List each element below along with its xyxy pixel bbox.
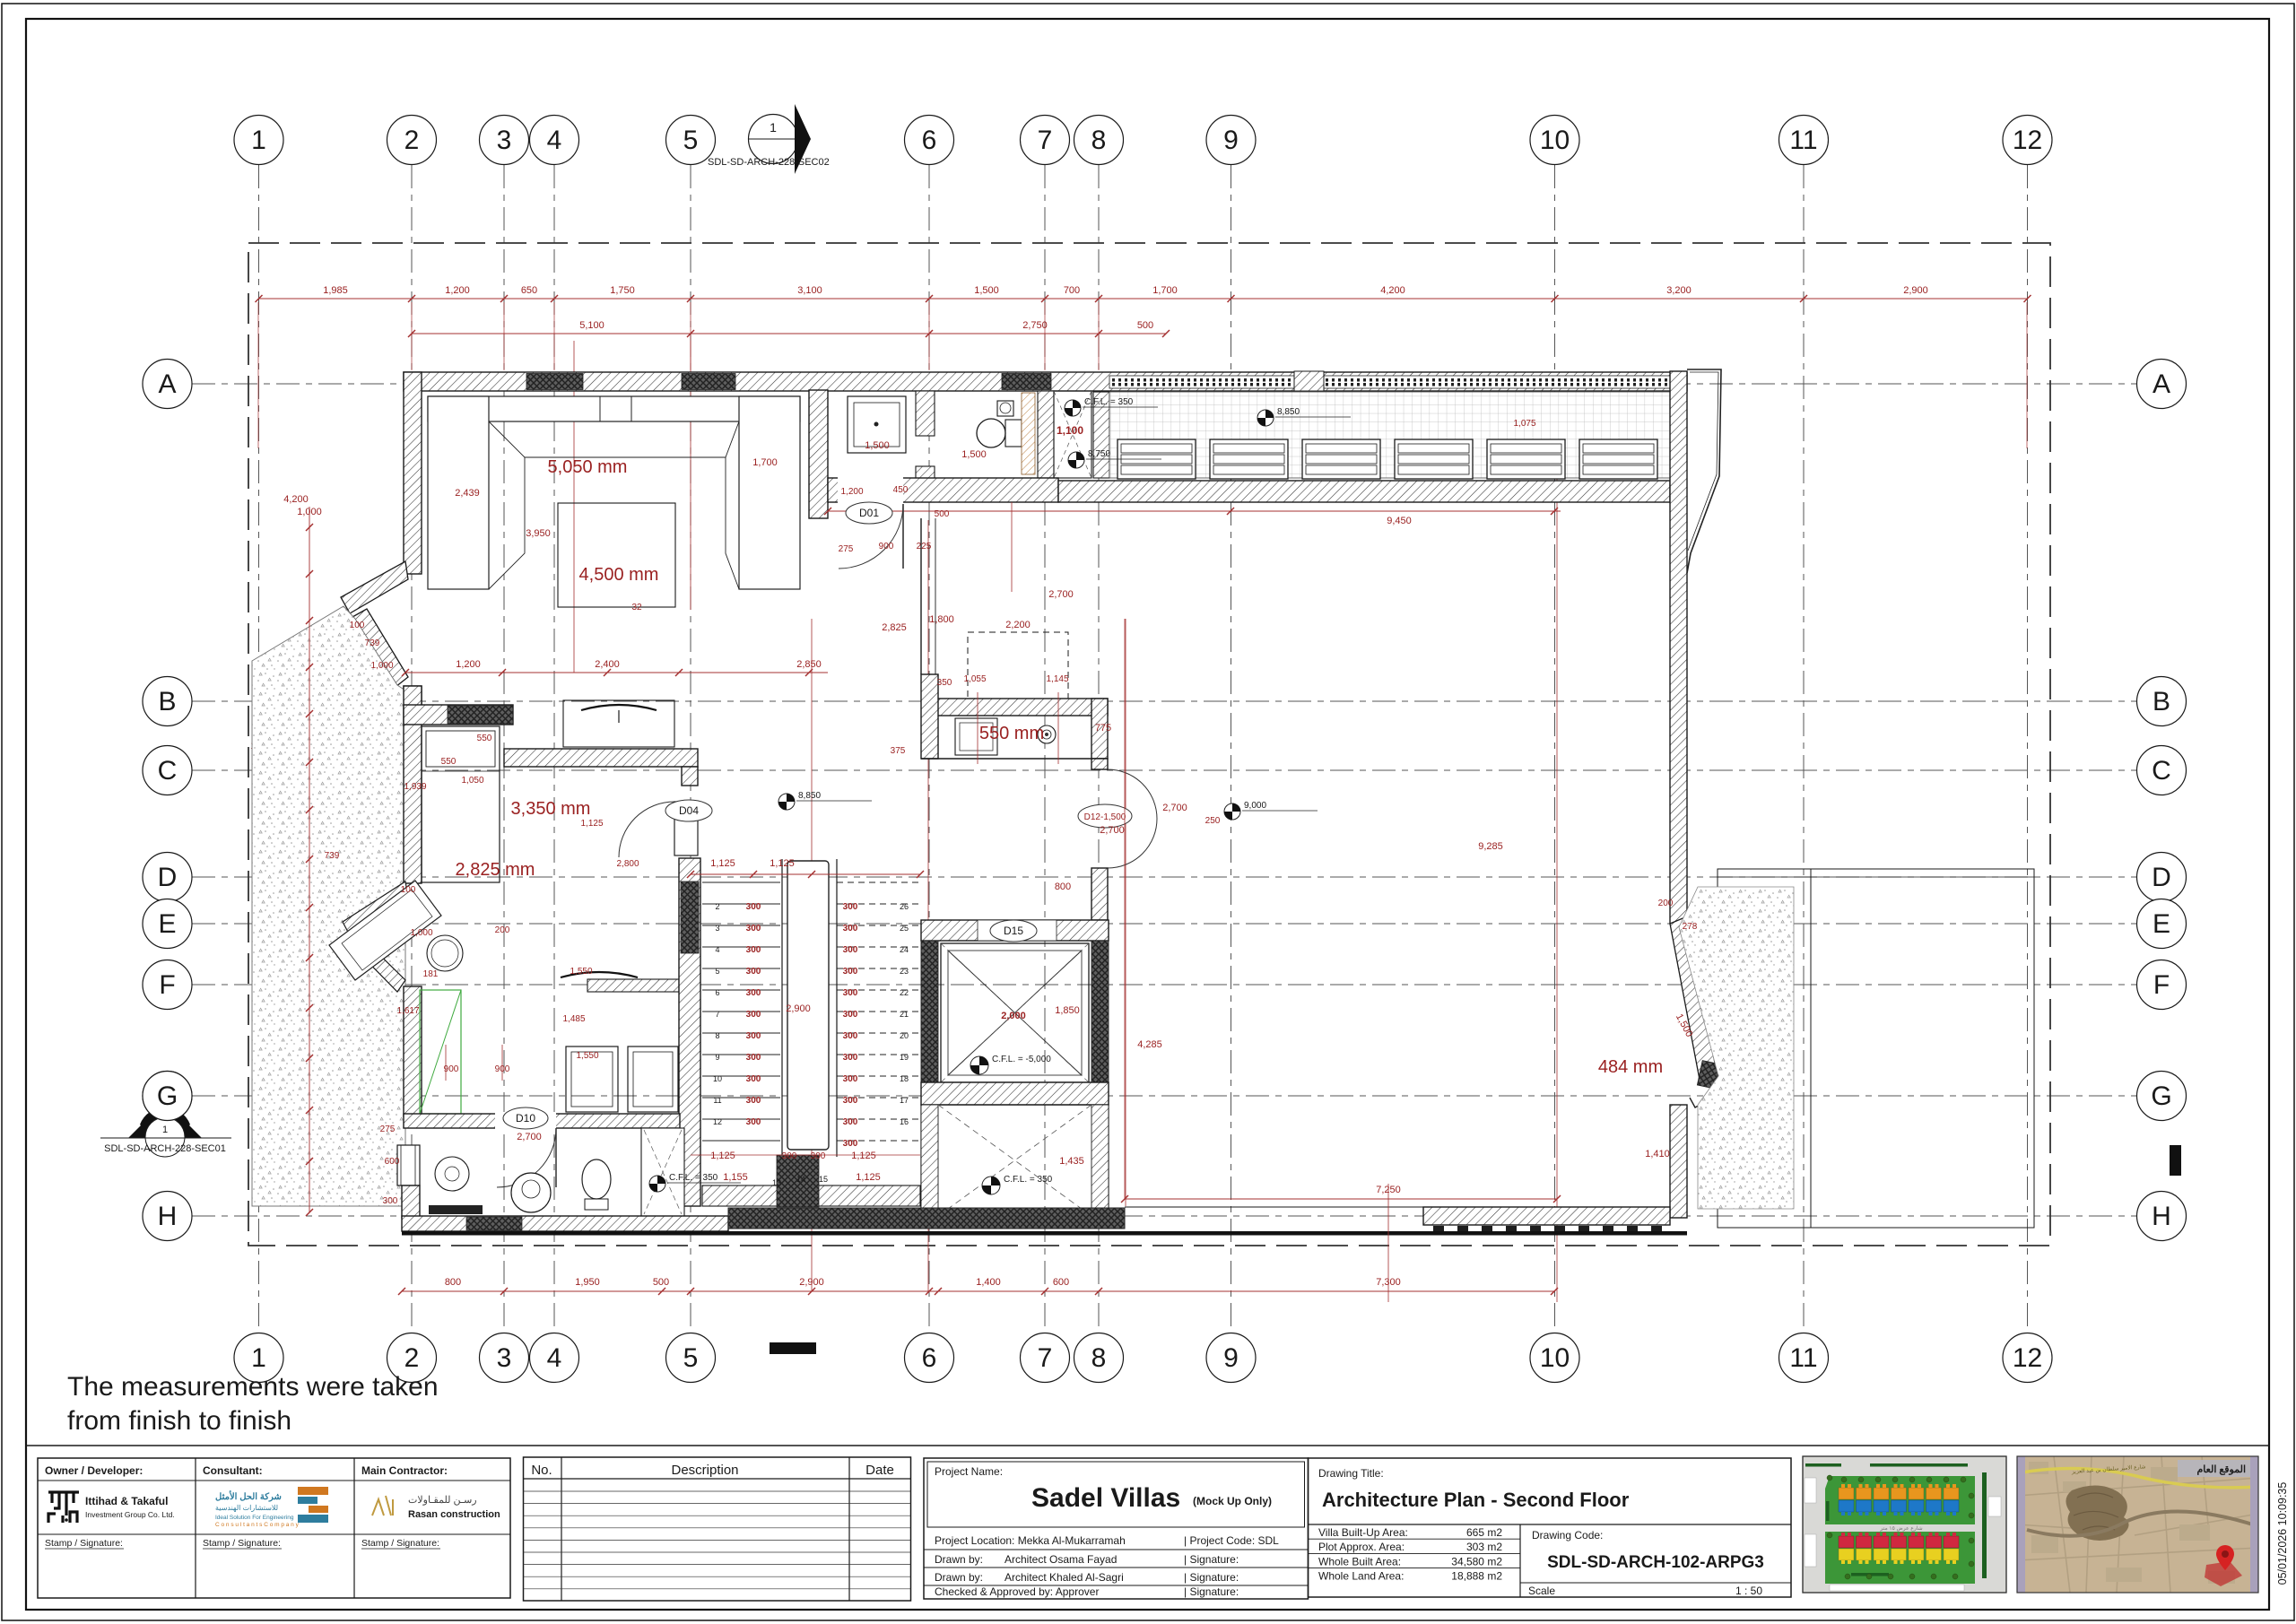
svg-text:4: 4: [547, 126, 562, 155]
svg-text:18,888 m2: 18,888 m2: [1451, 1570, 1502, 1583]
svg-text:2,439: 2,439: [455, 488, 480, 499]
svg-text:17: 17: [900, 1096, 909, 1105]
svg-text:Rasan construction: Rasan construction: [408, 1509, 500, 1520]
svg-text:6: 6: [715, 988, 719, 997]
svg-text:300: 300: [843, 967, 858, 977]
svg-text:300: 300: [843, 902, 858, 912]
svg-text:D01: D01: [859, 507, 879, 519]
svg-text:2,700: 2,700: [1162, 803, 1187, 813]
svg-text:D12-1,500: D12-1,500: [1084, 812, 1126, 822]
svg-text:شارع عرض ١٥ متر: شارع عرض ١٥ متر: [1879, 1525, 1922, 1532]
svg-text:Consultant:: Consultant:: [203, 1464, 263, 1477]
svg-text:11: 11: [1789, 126, 1817, 155]
svg-text:1,145: 1,145: [1046, 674, 1068, 684]
svg-text:5: 5: [715, 967, 719, 976]
svg-text:550: 550: [441, 757, 457, 767]
svg-text:5: 5: [683, 126, 699, 155]
svg-text:1,939: 1,939: [404, 782, 426, 792]
svg-text:C.F.L. = 350: C.F.L. = 350: [1004, 1175, 1053, 1185]
svg-text:2,700: 2,700: [517, 1132, 542, 1142]
svg-text:5,050 mm: 5,050 mm: [548, 457, 628, 477]
svg-text:34,580 m2: 34,580 m2: [1451, 1555, 1502, 1568]
svg-text:450: 450: [893, 485, 909, 495]
svg-text:| Signature:: | Signature:: [1184, 1585, 1239, 1598]
svg-text:9,450: 9,450: [1387, 516, 1412, 526]
svg-text:775: 775: [1095, 723, 1111, 734]
svg-text:E: E: [2152, 909, 2170, 939]
svg-text:600: 600: [385, 1157, 400, 1167]
svg-text:Sadel Villas: Sadel Villas: [1031, 1483, 1180, 1513]
svg-text:1: 1: [251, 1343, 266, 1373]
svg-text:B: B: [2152, 687, 2170, 716]
svg-text:H: H: [158, 1202, 178, 1231]
svg-text:1,155: 1,155: [723, 1172, 748, 1183]
svg-text:1,500: 1,500: [974, 285, 999, 296]
svg-text:Stamp / Signature:: Stamp / Signature:: [45, 1538, 123, 1549]
svg-text:18: 18: [900, 1074, 909, 1083]
svg-text:Drawn by:: Drawn by:: [935, 1553, 983, 1566]
svg-text:7: 7: [1038, 126, 1053, 155]
svg-text:1 : 50: 1 : 50: [1735, 1585, 1762, 1597]
svg-text:1,800: 1,800: [929, 614, 954, 625]
svg-text:550: 550: [477, 734, 492, 743]
svg-text:700: 700: [1064, 285, 1080, 296]
svg-text:275: 275: [380, 1125, 396, 1134]
svg-text:C o n s u l t a n t s C o m p: C o n s u l t a n t s C o m p a n y: [215, 1522, 300, 1528]
svg-text:8,850: 8,850: [1277, 407, 1300, 417]
svg-text:25: 25: [900, 924, 909, 933]
svg-text:Project Location: Mekka Al-Mu: Project Location: Mekka Al-Mukarramah: [935, 1534, 1126, 1547]
svg-text:3: 3: [497, 1343, 512, 1373]
svg-text:Architect Khaled Al-Sagri: Architect Khaled Al-Sagri: [1004, 1571, 1124, 1584]
svg-text:Owner / Developer:: Owner / Developer:: [45, 1464, 143, 1477]
svg-text:(Mock Up Only): (Mock Up Only): [1193, 1495, 1272, 1507]
svg-text:23: 23: [900, 967, 909, 976]
svg-text:1,550: 1,550: [576, 1051, 598, 1061]
svg-text:8: 8: [1091, 126, 1107, 155]
svg-text:739: 739: [365, 638, 380, 648]
svg-text:2,700: 2,700: [1100, 825, 1125, 836]
svg-text:800: 800: [1055, 881, 1071, 892]
svg-text:250: 250: [1205, 816, 1221, 826]
svg-text:19: 19: [900, 1053, 909, 1062]
svg-text:15: 15: [819, 1175, 828, 1184]
svg-text:300: 300: [843, 988, 858, 998]
svg-text:600: 600: [1053, 1277, 1069, 1288]
svg-text:3,200: 3,200: [1666, 285, 1692, 296]
svg-text:Architecture Plan - Second Flo: Architecture Plan - Second Floor: [1322, 1489, 1630, 1511]
svg-text:05/01/2026 10:09:35: 05/01/2026 10:09:35: [2276, 1482, 2289, 1585]
svg-text:300: 300: [746, 988, 761, 998]
svg-text:9: 9: [1223, 1343, 1239, 1373]
svg-text:2,700: 2,700: [1048, 589, 1074, 600]
svg-text:225: 225: [917, 542, 932, 551]
svg-text:9,285: 9,285: [1478, 841, 1503, 852]
svg-text:Stamp / Signature:: Stamp / Signature:: [361, 1538, 439, 1549]
svg-text:Whole Land Area:: Whole Land Area:: [1318, 1570, 1404, 1583]
svg-text:11: 11: [1789, 1343, 1817, 1373]
svg-text:1,125: 1,125: [851, 1151, 876, 1161]
svg-text:500: 500: [935, 509, 950, 519]
svg-text:D04: D04: [679, 804, 699, 817]
svg-text:22: 22: [900, 988, 909, 997]
svg-text:1,550: 1,550: [570, 967, 592, 977]
svg-text:2,900: 2,900: [1903, 285, 1928, 296]
svg-text:| Project Code: SDL: | Project Code: SDL: [1184, 1534, 1279, 1547]
svg-text:484 mm: 484 mm: [1598, 1057, 1663, 1077]
svg-text:D15: D15: [1004, 925, 1023, 937]
svg-text:2: 2: [404, 126, 420, 155]
svg-text:8,850: 8,850: [798, 791, 821, 801]
svg-text:C.F.L. = 350: C.F.L. = 350: [669, 1173, 718, 1183]
svg-text:2,825: 2,825: [882, 622, 907, 633]
svg-text:1: 1: [251, 126, 266, 155]
svg-text:200: 200: [1658, 899, 1674, 908]
svg-text:7: 7: [715, 1010, 719, 1019]
svg-text:20: 20: [900, 1031, 909, 1040]
svg-text:Scale: Scale: [1528, 1585, 1555, 1597]
svg-text:2,900: 2,900: [786, 1003, 811, 1014]
svg-text:100: 100: [401, 885, 416, 895]
svg-text:300: 300: [383, 1196, 398, 1206]
svg-text:Project Name:: Project Name:: [935, 1465, 1003, 1478]
svg-text:1,125: 1,125: [710, 1151, 735, 1161]
svg-text:300: 300: [843, 924, 858, 934]
svg-text:4,200: 4,200: [1380, 285, 1405, 296]
svg-text:C: C: [2152, 756, 2171, 786]
svg-text:3,350 mm: 3,350 mm: [511, 799, 591, 819]
svg-text:32: 32: [631, 603, 642, 612]
svg-text:7: 7: [1038, 1343, 1053, 1373]
svg-text:300: 300: [746, 967, 761, 977]
svg-text:1,485: 1,485: [562, 1014, 585, 1024]
svg-text:300: 300: [746, 1117, 761, 1127]
svg-text:SDL-SD-ARCH-102-ARPG3: SDL-SD-ARCH-102-ARPG3: [1547, 1553, 1764, 1572]
svg-text:H: H: [2152, 1202, 2171, 1231]
svg-text:300: 300: [843, 1139, 858, 1149]
svg-text:F: F: [2153, 970, 2170, 1000]
svg-text:278: 278: [1683, 922, 1698, 932]
svg-text:Ideal Solution For Engineering: Ideal Solution For Engineering: [215, 1515, 294, 1521]
svg-text:375: 375: [891, 746, 906, 756]
svg-text:Drawing Title:: Drawing Title:: [1318, 1467, 1384, 1480]
svg-text:SDL-SD-ARCH-228-SEC02: SDL-SD-ARCH-228-SEC02: [708, 157, 830, 168]
svg-text:4,200: 4,200: [283, 494, 309, 505]
svg-text:12: 12: [2013, 126, 2042, 155]
svg-text:1,750: 1,750: [610, 285, 635, 296]
svg-text:800: 800: [445, 1277, 461, 1288]
svg-text:شركة الحل الأمثل: شركة الحل الأمثل: [215, 1491, 282, 1502]
svg-text:C.F.L. = -5,000: C.F.L. = -5,000: [992, 1055, 1051, 1064]
svg-text:300: 300: [811, 1151, 826, 1161]
svg-text:F: F: [159, 970, 175, 1000]
svg-text:C: C: [158, 756, 178, 786]
svg-text:303 m2: 303 m2: [1466, 1541, 1502, 1553]
svg-text:1,410: 1,410: [1645, 1149, 1670, 1159]
svg-text:الموقع العام: الموقع العام: [2197, 1464, 2247, 1475]
svg-text:2,850: 2,850: [796, 659, 822, 670]
svg-text:1,055: 1,055: [963, 674, 986, 684]
svg-text:A: A: [2152, 369, 2170, 399]
svg-text:A: A: [158, 369, 176, 399]
svg-text:550 mm: 550 mm: [979, 724, 1044, 743]
svg-text:Date: Date: [865, 1463, 894, 1478]
svg-text:24: 24: [900, 945, 909, 954]
svg-text:275: 275: [839, 544, 854, 554]
svg-text:500: 500: [653, 1277, 669, 1288]
svg-text:300: 300: [843, 1117, 858, 1127]
svg-text:300: 300: [843, 1074, 858, 1084]
svg-text:1,075: 1,075: [1513, 419, 1535, 429]
svg-text:1,125: 1,125: [580, 819, 603, 829]
svg-text:200: 200: [495, 925, 510, 935]
svg-text:8,750: 8,750: [1088, 449, 1110, 459]
svg-text:1: 1: [770, 120, 777, 135]
svg-text:1,617: 1,617: [396, 1006, 419, 1016]
svg-text:9,000: 9,000: [1244, 801, 1266, 811]
svg-text:Whole Built Area:: Whole Built Area:: [1318, 1555, 1401, 1568]
svg-text:9: 9: [715, 1053, 719, 1062]
svg-text:1,200: 1,200: [840, 487, 863, 497]
svg-text:Checked & Approved by: Appro: Checked & Approved by: Approver: [935, 1585, 1099, 1598]
svg-text:3: 3: [715, 924, 719, 933]
svg-text:350: 350: [937, 678, 952, 688]
svg-text:للاستشارات الهندسية: للاستشارات الهندسية: [215, 1504, 278, 1512]
svg-text:Plot Approx. Area:: Plot Approx. Area:: [1318, 1541, 1405, 1553]
svg-text:300: 300: [843, 945, 858, 955]
svg-text:300: 300: [746, 902, 761, 912]
svg-text:300: 300: [746, 1010, 761, 1020]
svg-text:1,700: 1,700: [752, 457, 778, 468]
svg-text:10: 10: [1540, 126, 1570, 155]
svg-text:1,200: 1,200: [456, 659, 481, 670]
svg-text:739: 739: [325, 851, 340, 861]
svg-text:Description: Description: [671, 1463, 738, 1478]
svg-text:G: G: [2151, 1081, 2171, 1111]
svg-text:2,800: 2,800: [616, 859, 639, 869]
svg-text:8: 8: [1091, 1343, 1107, 1373]
svg-text:10: 10: [1540, 1343, 1570, 1373]
svg-text:2,400: 2,400: [595, 659, 620, 670]
svg-text:D: D: [2152, 863, 2171, 892]
svg-text:1,125: 1,125: [770, 858, 795, 869]
svg-text:300: 300: [746, 1053, 761, 1063]
svg-text:1,000: 1,000: [370, 661, 393, 671]
svg-text:G: G: [157, 1081, 178, 1111]
svg-text:300: 300: [746, 945, 761, 955]
svg-text:Investment Group Co. Ltd.: Investment Group Co. Ltd.: [85, 1510, 175, 1519]
svg-text:500: 500: [1137, 320, 1153, 331]
svg-text:| Signature:: | Signature:: [1184, 1571, 1239, 1584]
svg-text:Stamp / Signature:: Stamp / Signature:: [203, 1538, 281, 1549]
svg-text:| Signature:: | Signature:: [1184, 1553, 1239, 1566]
svg-text:Architect Osama Fayad: Architect Osama Fayad: [1004, 1553, 1117, 1566]
svg-text:11: 11: [713, 1096, 721, 1105]
svg-text:1,985: 1,985: [323, 285, 348, 296]
svg-text:300: 300: [746, 1096, 761, 1106]
svg-text:1,435: 1,435: [1059, 1156, 1084, 1167]
svg-text:3,950: 3,950: [526, 528, 551, 539]
svg-text:3: 3: [497, 126, 512, 155]
svg-text:B: B: [158, 687, 176, 716]
svg-text:Villa Built-Up Area:: Villa Built-Up Area:: [1318, 1526, 1408, 1539]
svg-text:100: 100: [350, 621, 365, 630]
svg-text:300: 300: [843, 1096, 858, 1106]
svg-text:5: 5: [683, 1343, 699, 1373]
svg-text:5,100: 5,100: [579, 320, 604, 331]
svg-text:181: 181: [423, 969, 439, 979]
svg-text:1,000: 1,000: [410, 928, 432, 938]
svg-text:3,100: 3,100: [797, 285, 822, 296]
svg-text:300: 300: [843, 1053, 858, 1063]
svg-text:رسـن للمقـاولات: رسـن للمقـاولات: [408, 1495, 477, 1506]
svg-text:Ittihad & Takaful: Ittihad & Takaful: [85, 1495, 168, 1507]
svg-text:16: 16: [900, 1117, 909, 1126]
svg-text:1,500: 1,500: [961, 449, 987, 460]
svg-text:C.F.L. = 350: C.F.L. = 350: [1084, 397, 1134, 407]
svg-text:300: 300: [843, 1031, 858, 1041]
svg-text:2,825 mm: 2,825 mm: [456, 860, 535, 880]
svg-text:No.: No.: [531, 1463, 552, 1478]
svg-text:2,200: 2,200: [1005, 620, 1031, 630]
svg-text:650: 650: [521, 285, 537, 296]
svg-text:4: 4: [715, 945, 719, 954]
svg-text:12: 12: [713, 1117, 722, 1126]
svg-text:900: 900: [879, 542, 894, 551]
svg-text:21: 21: [900, 1010, 909, 1019]
svg-text:4,500 mm: 4,500 mm: [579, 565, 659, 585]
svg-text:from finish to finish: from finish to finish: [67, 1406, 291, 1436]
svg-text:300: 300: [746, 1074, 761, 1084]
svg-text:1: 1: [162, 1125, 168, 1135]
svg-text:13: 13: [772, 1178, 781, 1187]
svg-text:1,400: 1,400: [976, 1277, 1001, 1288]
svg-text:2,000: 2,000: [1001, 1011, 1026, 1021]
svg-text:1,950: 1,950: [575, 1277, 600, 1288]
svg-text:300: 300: [782, 1151, 797, 1161]
svg-text:1,700: 1,700: [1152, 285, 1178, 296]
svg-text:The measurements were taken: The measurements were taken: [67, 1372, 439, 1402]
svg-text:1,125: 1,125: [710, 858, 735, 869]
svg-text:9: 9: [1223, 126, 1239, 155]
svg-text:665 m2: 665 m2: [1466, 1526, 1502, 1539]
svg-text:Drawn by:: Drawn by:: [935, 1571, 983, 1584]
svg-text:Drawing Code:: Drawing Code:: [1532, 1529, 1603, 1541]
svg-text:4: 4: [547, 1343, 562, 1373]
svg-text:Main Contractor:: Main Contractor:: [361, 1464, 448, 1477]
svg-text:D10: D10: [516, 1112, 535, 1125]
svg-text:300: 300: [843, 1010, 858, 1020]
svg-text:1,500: 1,500: [865, 440, 890, 451]
svg-text:14: 14: [796, 1175, 805, 1184]
svg-text:300: 300: [746, 924, 761, 934]
svg-text:1,850: 1,850: [1055, 1005, 1080, 1016]
svg-text:6: 6: [922, 1343, 937, 1373]
svg-text:1,125: 1,125: [856, 1172, 881, 1183]
svg-text:4,285: 4,285: [1137, 1039, 1162, 1050]
svg-text:2: 2: [715, 902, 719, 911]
svg-text:26: 26: [900, 902, 909, 911]
svg-text:10: 10: [713, 1074, 722, 1083]
svg-text:300: 300: [746, 1031, 761, 1041]
svg-text:6: 6: [922, 126, 937, 155]
svg-text:1,100: 1,100: [1057, 424, 1083, 437]
svg-text:1,050: 1,050: [461, 776, 483, 786]
svg-text:12: 12: [2013, 1343, 2042, 1373]
svg-text:8: 8: [715, 1031, 719, 1040]
svg-text:SDL-SD-ARCH-228-SEC01: SDL-SD-ARCH-228-SEC01: [104, 1143, 226, 1154]
svg-text:1,200: 1,200: [445, 285, 470, 296]
svg-text:2: 2: [404, 1343, 420, 1373]
svg-text:D: D: [158, 863, 178, 892]
svg-text:E: E: [158, 909, 176, 939]
svg-text:2,750: 2,750: [1022, 320, 1048, 331]
